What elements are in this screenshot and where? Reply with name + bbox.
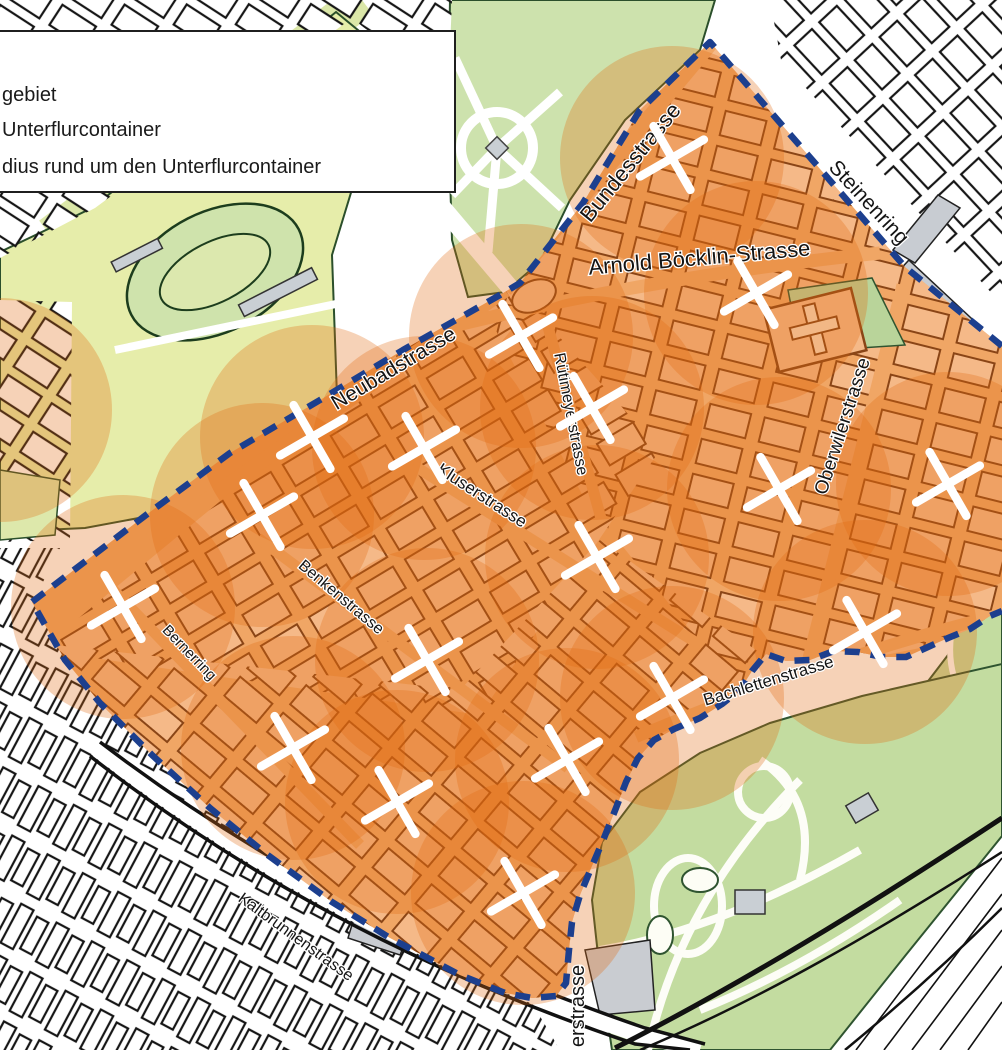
- legend-item-pilot-area: gebiet: [2, 84, 57, 107]
- park-building: [735, 890, 765, 914]
- map-page: BundesstrasseSteinenringArnold Böcklin-S…: [0, 0, 1002, 1050]
- legend-item-unterflurcontainer: Unterflurcontainer: [2, 119, 161, 142]
- street-label: erstrasse: [567, 965, 589, 1047]
- park-clearing: [682, 868, 718, 892]
- legend-item-radius: dius rund um den Unterflurcontainer: [2, 156, 321, 179]
- legend-panel: gebiet Unterflurcontainer dius rund um d…: [0, 30, 456, 193]
